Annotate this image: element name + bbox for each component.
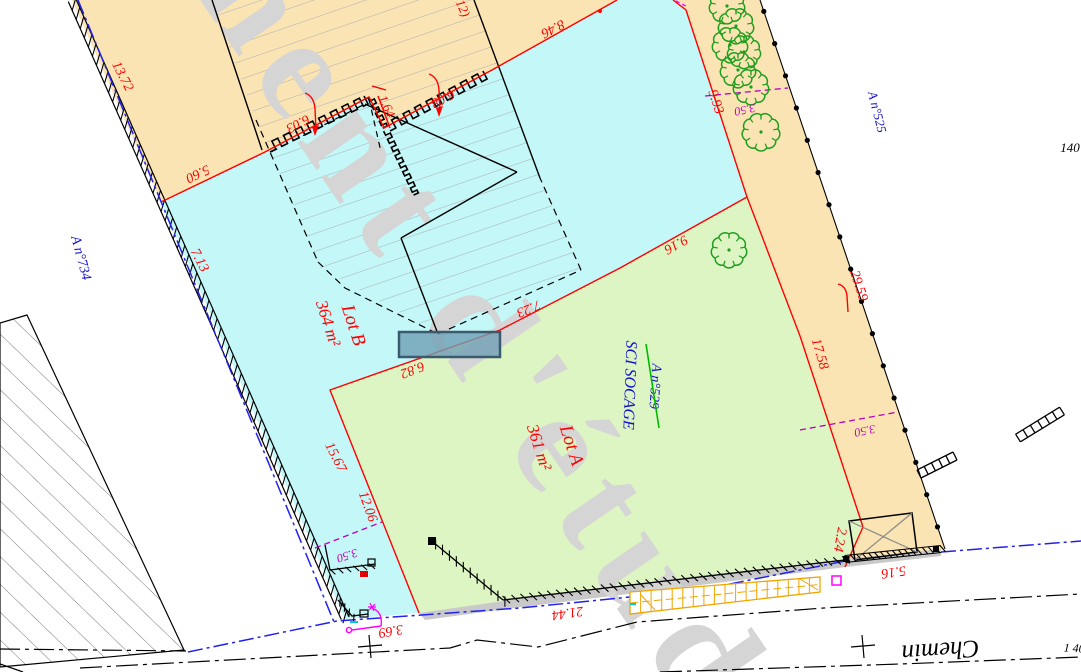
svg-text:Chemin: Chemin bbox=[901, 634, 980, 666]
svg-text:140: 140 bbox=[1060, 140, 1080, 155]
svg-text:SCI SOCAGE: SCI SOCAGE bbox=[619, 340, 639, 430]
svg-text:1 40: 1 40 bbox=[1063, 640, 1081, 655]
